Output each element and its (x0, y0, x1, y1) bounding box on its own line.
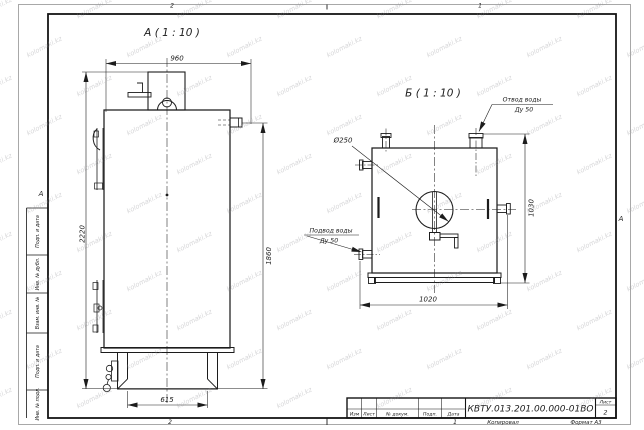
technical-drawing: 2 1 2 1 Копировал Формат А3 А А Подп. и … (0, 0, 644, 430)
view-b-texts: Б ( 1 : 10 ) 1030 1020 Ø250 Отвод воды Д… (310, 88, 542, 304)
zone-number-top-right: 1 (478, 3, 482, 10)
tb-sheet-number: 2 (603, 409, 607, 417)
tb-col-list: Лист (362, 412, 375, 418)
zone-number-bottom-right: 1 (453, 419, 457, 426)
copy-label: Копировал (487, 420, 519, 426)
fold-mark-right: А (618, 215, 624, 223)
outlet-label-line1: Отвод воды (503, 97, 542, 104)
sheet-frame (19, 5, 631, 426)
inlet-label-line1: Подвод воды (310, 228, 353, 235)
view-b-title: Б ( 1 : 10 ) (405, 88, 461, 100)
drawing-sheet: 2 1 2 1 Копировал Формат А3 А А Подп. и … (0, 0, 644, 430)
tb-col-doc: № докум. (385, 412, 409, 418)
zone-number-top-left: 2 (170, 3, 174, 10)
stamp-col-sign-date-2: Подп. и дата (35, 345, 41, 378)
zone-number-bottom-left: 2 (168, 419, 172, 426)
dim-615: 615 (160, 396, 174, 404)
tb-col-podp: Подп. (423, 412, 437, 418)
diameter-label: Ø250 (333, 137, 353, 145)
view-b-geometry (304, 105, 553, 310)
outlet-label-line2: Ду 50 (514, 107, 533, 114)
dim-1860: 1860 (265, 247, 273, 265)
stamp-col-vzam-inv: Взам. инв. № (35, 297, 41, 330)
tb-col-data: Дата (447, 412, 460, 418)
dim-1030: 1030 (528, 199, 536, 217)
view-a-geometry (82, 58, 268, 408)
dim-2220: 2220 (79, 225, 87, 243)
inlet-label-line2: Ду 50 (319, 238, 338, 245)
stamp-col-inv-dupl: Инв. № дубл. (35, 258, 41, 291)
dim-960: 960 (170, 55, 184, 63)
fold-mark-left: А (38, 190, 44, 198)
tb-col-izm: Изм (350, 412, 360, 418)
tb-sheet-label: Лист (599, 400, 612, 406)
tb-doc-number: КВТУ.013.201.00.000-01ВО (468, 405, 594, 415)
dim-1020: 1020 (419, 296, 437, 304)
stamp-col-inv-podl: Инв. № подл. (35, 387, 41, 420)
format-label: Формат А3 (570, 420, 602, 426)
view-a-title: А ( 1 : 10 ) (143, 27, 200, 39)
stamp-col-sign-date-1: Подп. и дата (35, 215, 41, 248)
